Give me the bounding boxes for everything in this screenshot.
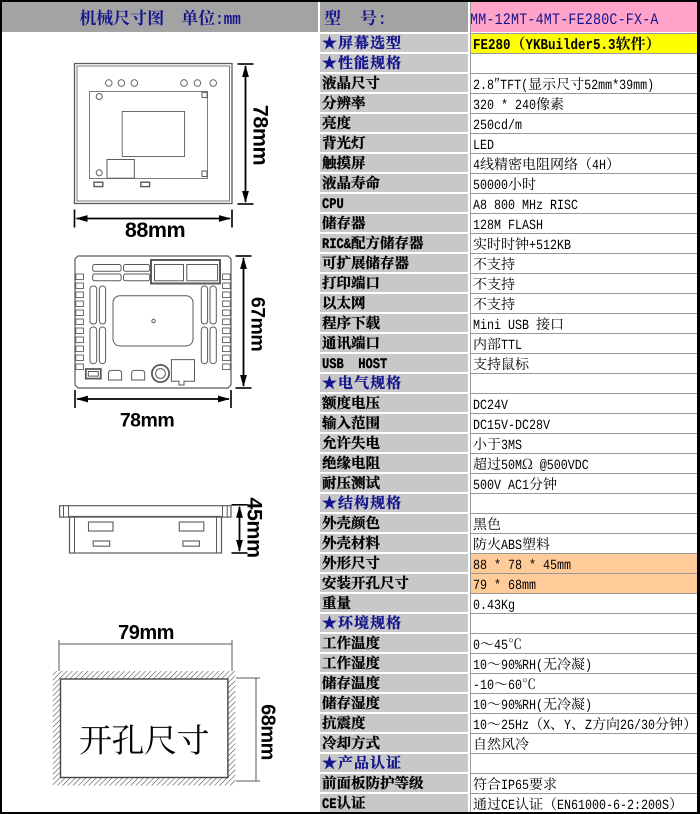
svg-text:79mm: 79mm <box>118 622 174 644</box>
svg-text:67mm: 67mm <box>246 297 268 352</box>
svg-text:88mm: 88mm <box>125 218 185 242</box>
svg-text:68mm: 68mm <box>257 704 279 760</box>
svg-text:开孔尺寸: 开孔尺寸 <box>79 715 209 762</box>
svg-text:45mm: 45mm <box>242 497 266 557</box>
svg-text:78mm: 78mm <box>120 410 175 432</box>
svg-text:78mm: 78mm <box>248 105 272 165</box>
